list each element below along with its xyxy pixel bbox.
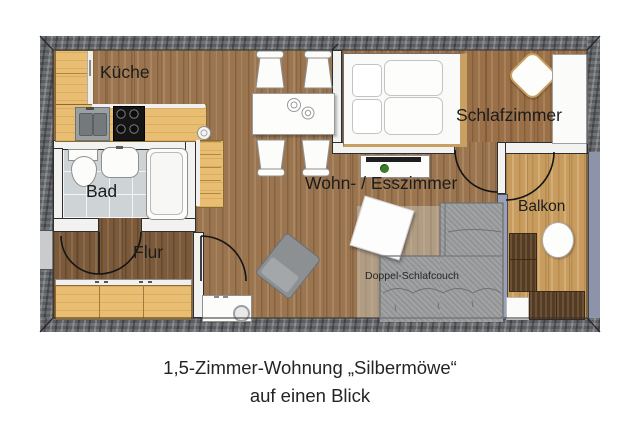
room-label-hall: Flur — [133, 242, 163, 263]
room-label-bedroom: Schlafzimmer — [456, 105, 562, 126]
counter-corner-plate — [198, 127, 211, 140]
caption-line-2: auf einen Blick — [38, 385, 582, 407]
floor-plan-page: Küche Bad Flur Wohn- / Esszimmer Schlafz… — [0, 0, 640, 427]
entrance-door-arc — [61, 236, 99, 274]
room-label-living: Wohn- / Esszimmer — [305, 173, 457, 194]
room-label-balcony: Balkon — [518, 198, 565, 216]
sofa-label: Doppel-Schlafcouch — [352, 270, 472, 282]
cooktop-burners — [117, 110, 138, 133]
dining-chair-2 — [304, 51, 332, 88]
dining-chair-1 — [256, 51, 284, 88]
caption-line-1: 1,5-Zimmer-Wohnung „Silbermöwe“ — [38, 357, 582, 379]
dining-chair-3 — [257, 140, 285, 176]
sofa-seams — [380, 203, 503, 318]
dining-chair-4 — [302, 140, 330, 176]
balcony-door-arc — [506, 152, 554, 200]
table-plates — [288, 99, 315, 120]
room-label-bath: Bad — [86, 181, 117, 202]
bedroom-door-arc — [455, 150, 497, 192]
room-label-kitchen: Küche — [100, 62, 150, 83]
living-door-arc — [201, 236, 246, 281]
